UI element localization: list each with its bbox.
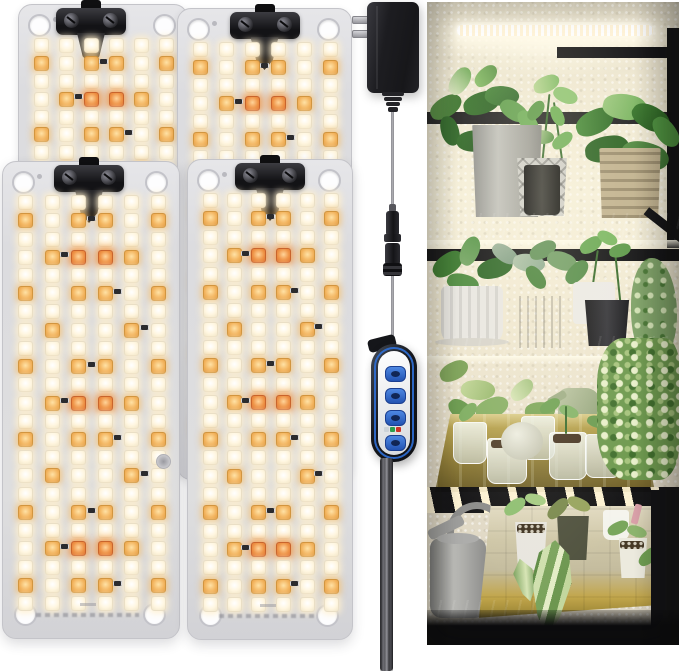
warm-white-LED <box>251 340 266 355</box>
warm-white-LED <box>124 377 139 392</box>
warm-white-LED <box>245 78 260 93</box>
grow-lightbar-top <box>457 25 653 36</box>
warm-white-LED <box>300 432 315 447</box>
smd-component <box>87 216 96 221</box>
warm-white-LED <box>18 487 33 502</box>
warm-white-LED <box>45 596 60 611</box>
warm-white-LED <box>276 469 291 484</box>
amber-LED <box>251 432 266 447</box>
warm-white-LED <box>45 213 60 228</box>
amber-LED <box>251 285 266 300</box>
warm-white-LED <box>300 340 315 355</box>
warm-white-LED <box>18 323 33 338</box>
warm-white-LED <box>98 268 113 283</box>
warm-white-LED <box>18 560 33 575</box>
warm-white-LED <box>227 267 242 282</box>
mounting-clamp <box>233 155 307 223</box>
warm-white-LED <box>18 250 33 265</box>
warm-white-LED <box>71 560 86 575</box>
warm-white-LED <box>227 597 242 612</box>
warm-white-LED <box>323 114 338 129</box>
warm-white-LED <box>124 341 139 356</box>
warm-white-LED <box>71 323 86 338</box>
warm-white-LED <box>300 230 315 245</box>
smd-component <box>74 94 83 99</box>
amber-LED <box>98 505 113 520</box>
amber-LED <box>45 468 60 483</box>
smd-component <box>290 435 299 440</box>
corner-screw-hole <box>187 18 210 41</box>
adapter-body <box>367 2 419 93</box>
warm-white-LED <box>324 413 339 428</box>
deep-orange-LED <box>84 92 99 107</box>
warm-white-LED <box>323 78 338 93</box>
warm-white-LED <box>98 195 113 210</box>
amber-LED <box>151 359 166 374</box>
warm-white-LED <box>18 414 33 429</box>
corner-screw-hole <box>318 169 341 192</box>
corner-screw-hole <box>12 171 35 194</box>
warm-white-LED <box>18 396 33 411</box>
amber-LED <box>227 248 242 263</box>
power-cable-upper <box>391 112 394 206</box>
warm-white-LED <box>124 414 139 429</box>
product-image <box>0 0 679 671</box>
warm-white-LED <box>219 132 234 147</box>
warm-white-LED <box>45 286 60 301</box>
warm-white-LED <box>203 322 218 337</box>
amber-LED <box>71 286 86 301</box>
warm-white-LED <box>324 395 339 410</box>
warm-white-LED <box>98 414 113 429</box>
warm-white-LED <box>227 303 242 318</box>
smd-component <box>260 63 269 68</box>
warm-white-LED <box>324 193 339 208</box>
warm-white-LED <box>45 359 60 374</box>
warm-white-LED <box>45 232 60 247</box>
clamp-screw <box>64 13 79 28</box>
warm-white-LED <box>323 42 338 57</box>
amber-LED <box>84 127 99 142</box>
smd-component <box>290 581 299 586</box>
warm-white-LED <box>324 524 339 539</box>
warm-white-LED <box>71 523 86 538</box>
warm-white-LED <box>276 560 291 575</box>
warm-white-LED <box>251 303 266 318</box>
amber-LED <box>193 60 208 75</box>
warm-white-LED <box>84 74 99 89</box>
warm-white-LED <box>159 38 174 53</box>
amber-LED <box>151 213 166 228</box>
warm-white-LED <box>45 304 60 319</box>
smd-component <box>314 471 323 476</box>
strain-relief <box>384 97 402 101</box>
warm-white-LED <box>193 114 208 129</box>
warm-white-LED <box>276 487 291 502</box>
smd-component <box>241 251 250 256</box>
egg-shaped-pot <box>501 422 543 460</box>
warm-white-LED <box>124 286 139 301</box>
amber-LED <box>251 579 266 594</box>
smd-component <box>60 544 69 549</box>
warm-white-LED <box>227 524 242 539</box>
warm-white-LED <box>276 303 291 318</box>
amber-LED <box>203 579 218 594</box>
amber-LED <box>45 250 60 265</box>
warm-white-LED <box>227 560 242 575</box>
warm-white-LED <box>227 450 242 465</box>
warm-white-LED <box>193 78 208 93</box>
shelf-2 <box>427 213 679 240</box>
amber-LED <box>18 359 33 374</box>
warm-white-LED <box>227 377 242 392</box>
warm-white-LED <box>324 303 339 318</box>
clamp-screw <box>103 13 118 28</box>
warm-white-LED <box>203 193 218 208</box>
amber-LED <box>323 132 338 147</box>
adapter-edge-highlight <box>376 6 378 89</box>
amber-LED <box>203 505 218 520</box>
warm-white-LED <box>251 487 266 502</box>
warm-white-LED <box>151 232 166 247</box>
warm-white-LED <box>45 195 60 210</box>
amber-LED <box>71 213 86 228</box>
clamp-screw <box>238 17 253 32</box>
warm-white-LED <box>227 579 242 594</box>
warm-white-LED <box>276 450 291 465</box>
warm-white-LED <box>18 468 33 483</box>
warm-white-LED <box>300 505 315 520</box>
amber-LED <box>124 250 139 265</box>
warm-white-LED <box>251 524 266 539</box>
deep-orange-LED <box>276 542 291 557</box>
warm-white-LED <box>18 541 33 556</box>
warm-white-LED <box>34 74 49 89</box>
indicator-light-2 <box>390 427 395 432</box>
warm-white-LED <box>151 377 166 392</box>
warm-white-LED <box>324 560 339 575</box>
controller-button-2 <box>385 388 406 404</box>
corner-screw-hole <box>145 171 168 194</box>
warm-white-LED <box>124 487 139 502</box>
warm-white-LED <box>45 377 60 392</box>
amber-LED <box>251 358 266 373</box>
warm-white-LED <box>300 267 315 282</box>
amber-LED <box>109 127 124 142</box>
smd-component <box>124 130 133 135</box>
warm-white-LED <box>151 596 166 611</box>
warm-white-LED <box>18 195 33 210</box>
amber-LED <box>193 132 208 147</box>
warm-white-LED <box>45 487 60 502</box>
amber-LED <box>251 211 266 226</box>
smd-component <box>266 508 275 513</box>
warm-white-LED <box>251 230 266 245</box>
warm-white-LED <box>124 578 139 593</box>
amber-LED <box>71 505 86 520</box>
warm-white-LED <box>124 268 139 283</box>
warm-white-LED <box>203 450 218 465</box>
clamp-screw <box>277 17 292 32</box>
warm-white-LED <box>276 322 291 337</box>
amber-LED <box>124 396 139 411</box>
amber-LED <box>245 132 260 147</box>
warm-white-LED <box>159 145 174 160</box>
amber-LED <box>276 579 291 594</box>
warm-white-LED <box>276 267 291 282</box>
amber-LED <box>159 56 174 71</box>
amber-LED <box>151 578 166 593</box>
warm-white-LED <box>151 468 166 483</box>
warm-white-LED <box>151 487 166 502</box>
amber-LED <box>203 211 218 226</box>
warm-white-LED <box>276 524 291 539</box>
illegible-spec-print <box>219 614 314 618</box>
amber-LED <box>124 468 139 483</box>
warm-white-LED <box>324 322 339 337</box>
warm-white-LED <box>251 450 266 465</box>
warm-white-LED <box>203 377 218 392</box>
panel-connector-socket <box>156 454 171 469</box>
smd-component <box>113 289 122 294</box>
warm-white-LED <box>159 110 174 125</box>
warm-white-LED <box>324 487 339 502</box>
warm-white-LED <box>71 341 86 356</box>
warm-white-LED <box>59 38 74 53</box>
warm-white-LED <box>276 340 291 355</box>
amber-LED <box>98 359 113 374</box>
corner-screw-hole <box>197 169 220 192</box>
amber-LED <box>18 286 33 301</box>
amber-LED <box>276 358 291 373</box>
warm-white-LED <box>98 304 113 319</box>
amber-LED <box>159 127 174 142</box>
warm-white-LED <box>124 213 139 228</box>
warm-white-LED <box>300 211 315 226</box>
amber-LED <box>324 285 339 300</box>
warm-white-LED <box>151 195 166 210</box>
warm-white-LED <box>300 597 315 612</box>
smd-component <box>113 581 122 586</box>
warm-white-LED <box>98 596 113 611</box>
warm-white-LED <box>227 340 242 355</box>
amber-LED <box>271 60 286 75</box>
corner-screw-hole <box>153 14 176 37</box>
warm-white-LED <box>98 450 113 465</box>
warm-white-LED <box>45 578 60 593</box>
warm-white-LED <box>219 42 234 57</box>
warm-white-LED <box>134 110 149 125</box>
warm-white-LED <box>151 396 166 411</box>
warm-white-LED <box>84 38 99 53</box>
warm-white-LED <box>203 487 218 502</box>
frame-bar-upper-right <box>557 47 679 58</box>
mounting-clamp <box>52 157 126 225</box>
amber-LED <box>18 432 33 447</box>
warm-white-LED <box>151 250 166 265</box>
illegible-model-mark <box>260 604 276 607</box>
warm-white-LED <box>227 211 242 226</box>
warm-white-LED <box>151 523 166 538</box>
warm-white-LED <box>203 267 218 282</box>
warm-white-LED <box>124 195 139 210</box>
controller-button-3 <box>385 410 406 426</box>
warm-white-LED <box>18 596 33 611</box>
warm-white-LED <box>71 468 86 483</box>
warm-white-LED <box>297 60 312 75</box>
amber-LED <box>324 579 339 594</box>
warm-white-LED <box>227 487 242 502</box>
warm-white-LED <box>109 110 124 125</box>
amber-LED <box>300 542 315 557</box>
pot-ribbed-tan <box>598 148 662 218</box>
warm-white-LED <box>71 450 86 465</box>
warm-white-LED <box>109 74 124 89</box>
warm-white-LED <box>18 232 33 247</box>
deep-orange-LED <box>251 395 266 410</box>
warm-white-LED <box>324 340 339 355</box>
mounting-clamp <box>228 4 302 72</box>
warm-white-LED <box>300 377 315 392</box>
warm-white-LED <box>203 413 218 428</box>
warm-white-LED <box>45 505 60 520</box>
warm-white-LED <box>324 267 339 282</box>
warm-white-LED <box>18 523 33 538</box>
warm-white-LED <box>251 322 266 337</box>
clamp-screw <box>243 168 258 183</box>
warm-white-LED <box>227 358 242 373</box>
warm-white-LED <box>151 323 166 338</box>
amber-LED <box>203 358 218 373</box>
amber-LED <box>245 60 260 75</box>
warm-white-LED <box>134 56 149 71</box>
amber-LED <box>45 541 60 556</box>
amber-LED <box>151 286 166 301</box>
warm-white-LED <box>276 597 291 612</box>
warm-white-LED <box>84 110 99 125</box>
warm-white-LED <box>227 505 242 520</box>
amber-LED <box>18 505 33 520</box>
alignment-dot <box>37 174 42 179</box>
warm-white-LED <box>203 395 218 410</box>
warm-white-LED <box>98 323 113 338</box>
amber-LED <box>300 248 315 263</box>
amber-LED <box>276 505 291 520</box>
deep-orange-LED <box>271 96 286 111</box>
warm-white-LED <box>300 285 315 300</box>
warm-white-LED <box>300 487 315 502</box>
clamp-screw <box>101 170 116 185</box>
warm-white-LED <box>251 560 266 575</box>
pot-black-inner <box>524 165 560 215</box>
amber-LED <box>227 469 242 484</box>
amber-LED <box>219 96 234 111</box>
warm-white-LED <box>300 358 315 373</box>
warm-white-LED <box>300 303 315 318</box>
amber-LED <box>324 505 339 520</box>
warm-white-LED <box>324 377 339 392</box>
warm-white-LED <box>71 268 86 283</box>
warm-white-LED <box>193 42 208 57</box>
warm-white-LED <box>98 232 113 247</box>
warm-white-LED <box>300 413 315 428</box>
warm-white-LED <box>134 38 149 53</box>
warm-white-LED <box>324 450 339 465</box>
warm-white-LED <box>297 132 312 147</box>
warm-white-LED <box>203 469 218 484</box>
warm-white-LED <box>98 560 113 575</box>
deep-orange-LED <box>276 395 291 410</box>
amber-LED <box>71 359 86 374</box>
warm-white-LED <box>219 78 234 93</box>
alignment-dot <box>212 21 217 26</box>
deep-orange-LED <box>71 541 86 556</box>
warm-white-LED <box>45 414 60 429</box>
connector-jack <box>385 243 400 265</box>
amber-LED <box>276 285 291 300</box>
amber-LED <box>227 395 242 410</box>
warm-white-LED <box>71 414 86 429</box>
warm-white-LED <box>124 596 139 611</box>
warm-white-LED <box>227 193 242 208</box>
warm-white-LED <box>124 560 139 575</box>
power-cable-lower <box>380 458 393 671</box>
warm-white-LED <box>219 114 234 129</box>
warm-white-LED <box>203 597 218 612</box>
amber-LED <box>84 56 99 71</box>
warm-white-LED <box>203 248 218 263</box>
warm-white-LED <box>124 359 139 374</box>
warm-white-LED <box>271 78 286 93</box>
amber-LED <box>18 578 33 593</box>
watering-can-gray-rim <box>437 533 479 544</box>
indicator-light-1 <box>384 427 389 432</box>
warm-white-LED <box>276 230 291 245</box>
warm-white-LED <box>300 579 315 594</box>
warm-white-LED <box>124 505 139 520</box>
smd-component <box>87 362 96 367</box>
amber-LED <box>34 127 49 142</box>
warm-white-LED <box>300 193 315 208</box>
amber-LED <box>324 211 339 226</box>
warm-white-LED <box>18 268 33 283</box>
warm-white-LED <box>45 523 60 538</box>
smd-component <box>140 325 149 330</box>
amber-LED <box>45 323 60 338</box>
warm-white-LED <box>71 232 86 247</box>
amber-LED <box>227 542 242 557</box>
warm-white-LED <box>300 524 315 539</box>
amber-LED <box>324 432 339 447</box>
warm-white-LED <box>276 193 291 208</box>
controller-button-4 <box>385 435 406 451</box>
warm-white-LED <box>159 74 174 89</box>
warm-white-LED <box>45 450 60 465</box>
grow-panel-front-left <box>2 161 180 639</box>
amber-LED <box>45 396 60 411</box>
warm-white-LED <box>297 42 312 57</box>
warm-white-LED <box>245 114 260 129</box>
smd-component <box>314 324 323 329</box>
warm-white-LED <box>98 341 113 356</box>
warm-white-LED <box>151 541 166 556</box>
photo-bottom-shadow <box>427 610 679 645</box>
warm-white-LED <box>324 248 339 263</box>
warm-white-LED <box>227 230 242 245</box>
deep-orange-LED <box>276 248 291 263</box>
deep-orange-LED <box>71 396 86 411</box>
warm-white-LED <box>324 469 339 484</box>
